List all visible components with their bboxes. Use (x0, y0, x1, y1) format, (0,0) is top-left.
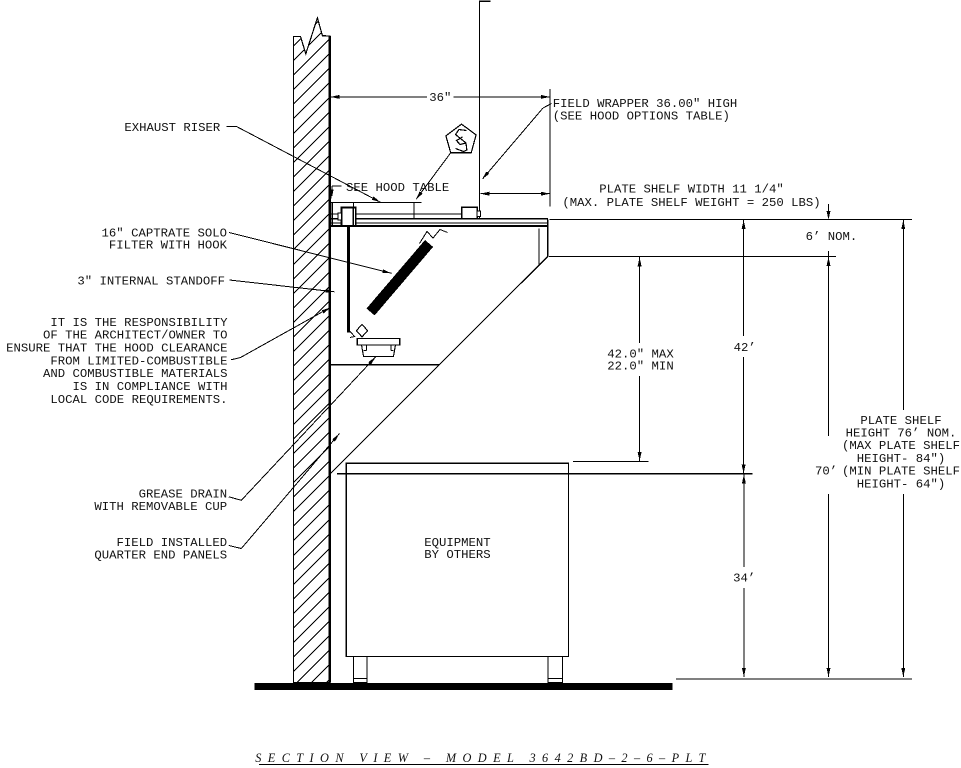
svg-text:QUARTER END PANELS: QUARTER END PANELS (94, 548, 227, 562)
svg-text:6’ NOM.: 6’ NOM. (806, 230, 858, 244)
svg-text:(SEE HOOD OPTIONS TABLE): (SEE HOOD OPTIONS TABLE) (553, 109, 730, 123)
svg-text:22.0" MIN: 22.0" MIN (607, 360, 673, 374)
svg-text:36": 36" (429, 91, 451, 105)
svg-text:HEIGHT- 64"): HEIGHT- 64") (857, 477, 946, 491)
svg-text:34’: 34’ (733, 572, 755, 586)
svg-text:SEE HOOD TABLE: SEE HOOD TABLE (346, 181, 449, 195)
svg-text:LOCAL CODE REQUIREMENTS.: LOCAL CODE REQUIREMENTS. (50, 393, 227, 407)
svg-text:WITH REMOVABLE CUP: WITH REMOVABLE CUP (94, 500, 227, 514)
svg-text:BY OTHERS: BY OTHERS (424, 548, 490, 562)
svg-text:PLATE SHELF WIDTH 11 1/4": PLATE SHELF WIDTH 11 1/4" (599, 183, 783, 197)
svg-text:SECTION VIEW – MODEL 3642BD–2–: SECTION VIEW – MODEL 3642BD–2–6–PLT (255, 751, 712, 765)
svg-text:FILTER WITH HOOK: FILTER WITH HOOK (109, 239, 228, 253)
svg-text:42’: 42’ (734, 341, 756, 355)
svg-text:(MAX. PLATE SHELF WEIGHT = 250: (MAX. PLATE SHELF WEIGHT = 250 LBS) (562, 196, 820, 210)
svg-text:3" INTERNAL STANDOFF: 3" INTERNAL STANDOFF (77, 274, 225, 288)
svg-text:70’: 70’ (815, 465, 837, 479)
svg-text:EXHAUST RISER: EXHAUST RISER (124, 121, 221, 135)
